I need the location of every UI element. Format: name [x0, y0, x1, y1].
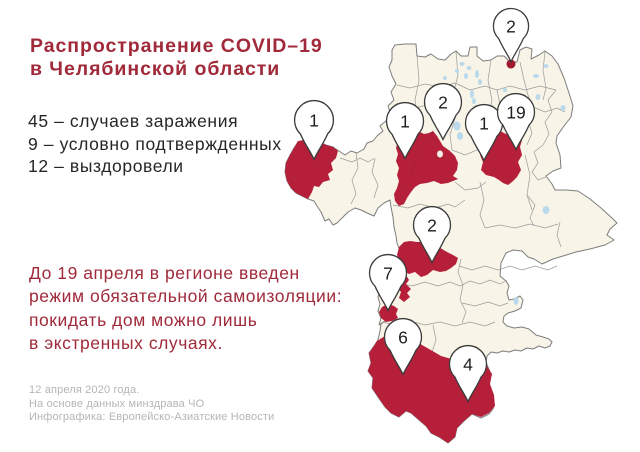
svg-text:1: 1 [400, 111, 410, 131]
svg-text:19: 19 [506, 102, 525, 122]
svg-text:2: 2 [427, 215, 437, 235]
svg-text:1: 1 [479, 113, 489, 133]
svg-text:1: 1 [309, 110, 319, 130]
svg-text:2: 2 [506, 16, 516, 36]
svg-text:2: 2 [438, 92, 448, 112]
svg-text:4: 4 [463, 354, 473, 374]
svg-text:7: 7 [383, 263, 393, 283]
svg-text:6: 6 [398, 327, 408, 347]
